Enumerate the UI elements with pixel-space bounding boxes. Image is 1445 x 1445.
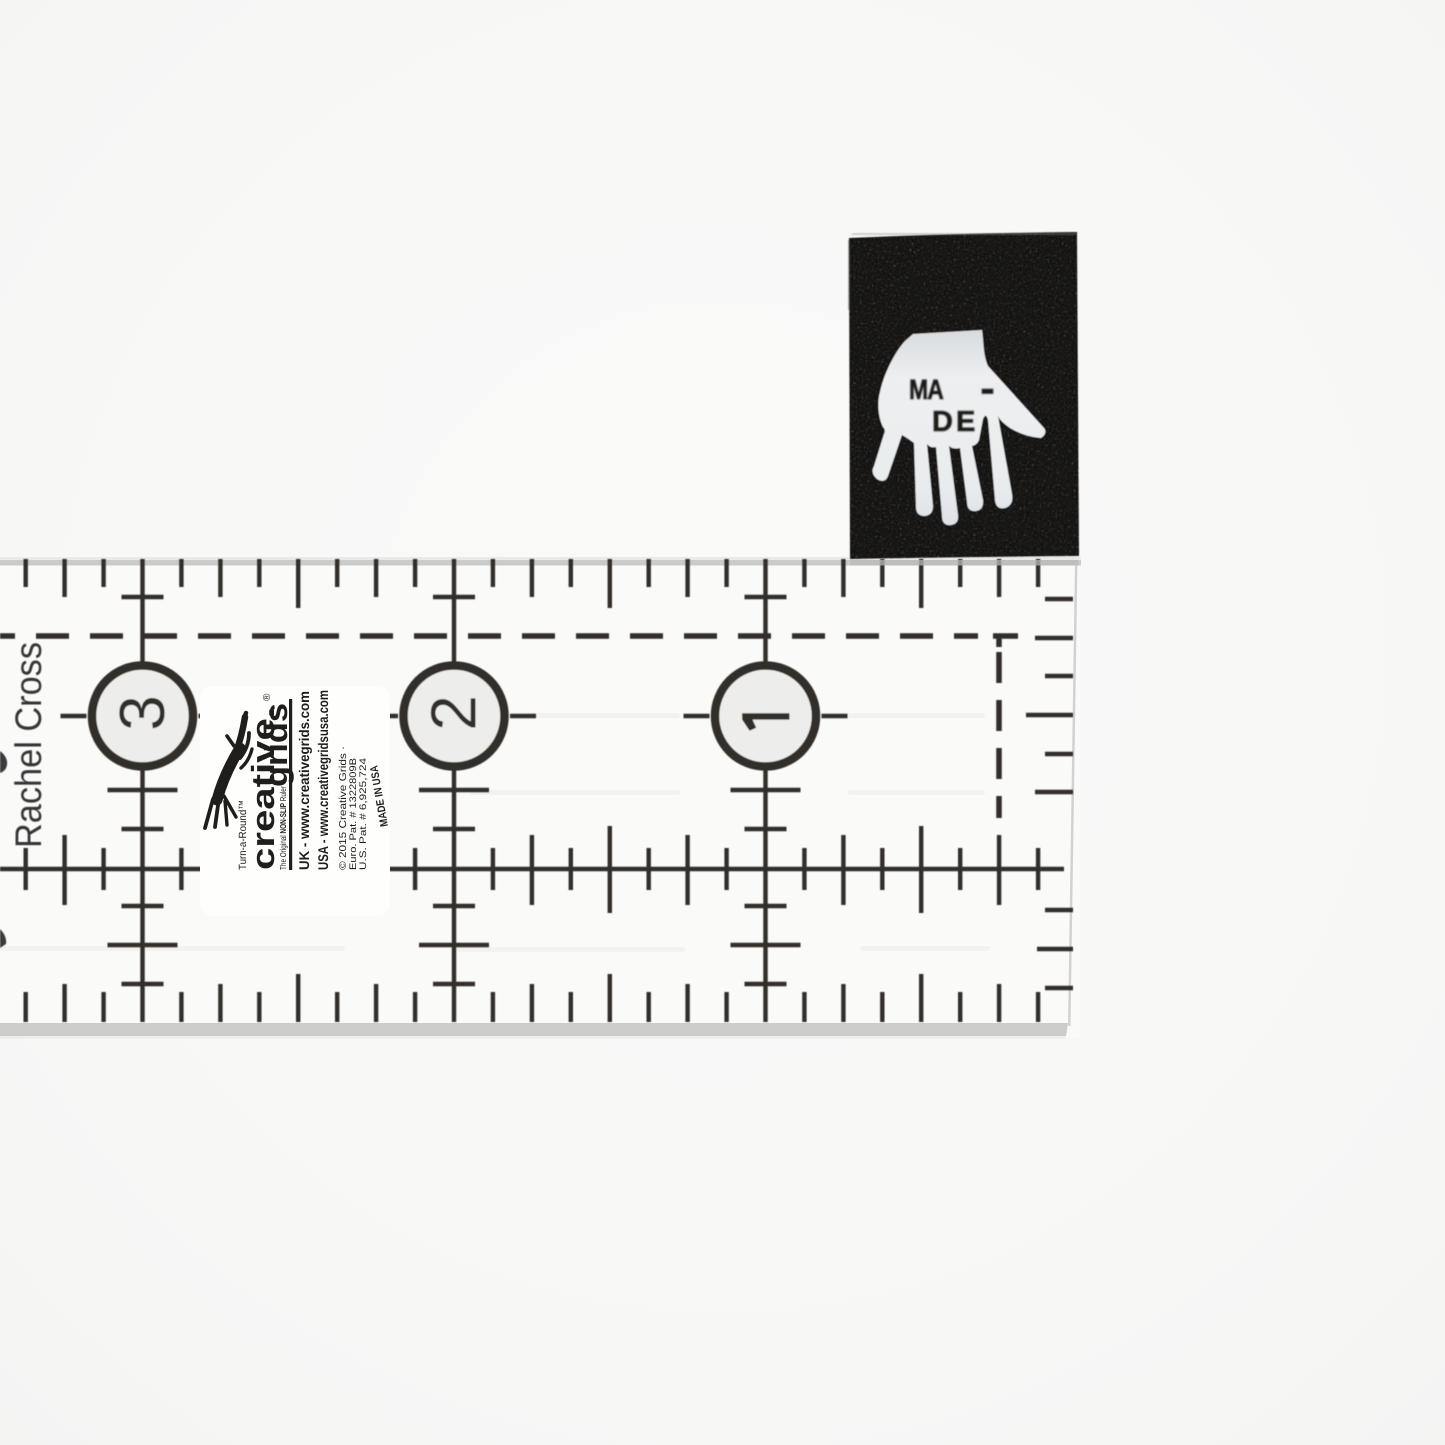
svg-text:U.S. Pat. # 6,925,724: U.S. Pat. # 6,925,724: [358, 758, 369, 870]
svg-text:UK - www.creativegrids.com: UK - www.creativegrids.com: [296, 691, 312, 870]
svg-text:grids: grids: [258, 703, 294, 787]
svg-text:®: ®: [262, 693, 273, 701]
svg-text:The Original NON-SLIP Ruler: The Original NON-SLIP Ruler: [278, 786, 288, 870]
svg-text:Rachel Cross: Rachel Cross: [8, 642, 49, 848]
svg-text:USA - www.creativegridsusa.com: USA - www.creativegridsusa.com: [315, 690, 331, 870]
svg-text:3: 3: [106, 695, 178, 731]
svg-text:DE: DE: [932, 406, 978, 438]
svg-text:2: 2: [418, 695, 490, 731]
svg-text:MA: MA: [909, 374, 944, 405]
